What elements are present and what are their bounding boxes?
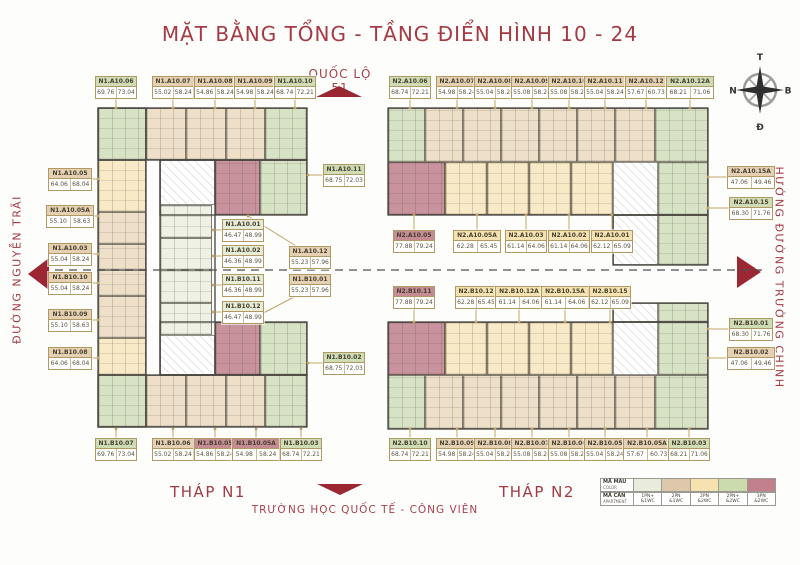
unit-area-net: 62.12: [592, 241, 613, 252]
unit-areas: 46.3648.99: [223, 285, 263, 296]
unit-areas: 47.0649.46: [728, 177, 774, 188]
unit-label-N1.A10.01: N1.A10.0146.4748.99: [222, 219, 264, 242]
unit-area-net: 57.67: [624, 449, 648, 460]
unit-code: N1.A10.02: [223, 246, 263, 256]
unit-label-N2.B10.10: N2.B10.1068.7472.21: [389, 438, 431, 461]
unit-code: N2.B10.05: [585, 439, 625, 449]
unit-areas: 54.8658.24: [195, 87, 235, 98]
unit-area-net: 46.47: [223, 230, 244, 241]
legend-swatch-tan: [662, 478, 690, 492]
unit-area-net: 68.74: [275, 87, 296, 98]
unit-area-net: 55.08: [512, 449, 533, 460]
unit-areas: 68.3071.76: [730, 208, 772, 219]
legend-type-tan: 2PN&1WC: [662, 492, 690, 506]
legend-type-green: 2PN+&2WC: [719, 492, 747, 506]
unit-areas: 55.0458.24: [475, 449, 515, 460]
unit-area-net: 68.74: [390, 449, 411, 460]
unit-areas: 57.6760.73: [626, 87, 666, 98]
unit-areas: 61.1464.06: [506, 241, 546, 252]
unit-areas: 55.0858.24: [512, 449, 552, 460]
compass-icon: T N B Đ: [728, 46, 792, 134]
unit-area-gross: 58.24: [71, 254, 92, 265]
unit-code: N1.B10.02: [324, 353, 364, 363]
unit-area-net: 55.04: [475, 449, 496, 460]
legend-type-pink: 3PN&2WC: [748, 492, 776, 506]
unit-area-gross: 48.99: [244, 285, 264, 296]
unit-label-N2.A10.01: N2.A10.0162.1265.09: [591, 230, 633, 253]
unit-label-N1.A10.07: N1.A10.0755.0258.24: [152, 76, 194, 99]
unit-code: N1.A10.01: [223, 220, 263, 230]
unit-label-N2.B10.05A: N2.B10.05A57.6760.73: [623, 438, 671, 461]
unit-code: N2.A10.01: [592, 231, 632, 241]
unit-areas: 55.2357.96: [290, 285, 330, 296]
legend-type-wc: &2WC: [697, 499, 711, 504]
unit-areas: 62.1265.09: [590, 297, 630, 308]
unit-label-N2.B10.09: N2.B10.0954.9858.24: [436, 438, 478, 461]
unit-area-gross: 73.04: [117, 87, 137, 98]
unit-code: N1.A10.07: [153, 77, 193, 87]
unit-areas: 55.0458.24: [49, 254, 91, 265]
unit-area-gross: 60.73: [647, 87, 667, 98]
unit-code: N2.A10.05A: [454, 231, 500, 241]
unit-label-N2.A10.05A: N2.A10.05A62.2865.45: [453, 230, 501, 253]
legend-color-row: MÃ MÀU COLOR: [600, 478, 776, 492]
unit-label-N2.A10.08: N2.A10.0855.0458.24: [474, 76, 516, 99]
unit-label-N2.B10.12: N2.B10.1262.2865.45: [455, 286, 497, 309]
unit-areas: 68.7472.21: [390, 449, 430, 460]
compass-left-letter: N: [729, 87, 737, 97]
unit-area-net: 68.74: [281, 449, 302, 460]
unit-area-net: 62.28: [454, 241, 478, 252]
unit-label-N2.A10.02: N2.A10.0261.1464.06: [548, 230, 590, 253]
unit-area-gross: 72.21: [302, 449, 322, 460]
unit-code: N2.A10.06: [390, 77, 430, 87]
legend-type-wc: &1WC: [669, 499, 683, 504]
unit-label-N2.A10.15A: N2.A10.15A47.0649.46: [727, 166, 775, 189]
unit-area-net: 55.04: [49, 254, 71, 265]
unit-area-net: 47.06: [728, 177, 752, 188]
unit-code: N1.B10.08: [49, 348, 91, 358]
unit-area-net: 69.76: [96, 449, 117, 460]
unit-code: N2.B10.06: [549, 439, 589, 449]
unit-label-N1.B10.08: N1.B10.0864.0668.04: [48, 347, 92, 370]
unit-label-N2.A10.15: N2.A10.1568.3071.76: [729, 197, 773, 220]
unit-area-net: 68.30: [730, 208, 752, 219]
unit-area-net: 55.08: [549, 87, 570, 98]
unit-label-N2.B10.03: N2.B10.0368.2171.06: [668, 438, 710, 461]
unit-areas: 68.2171.06: [669, 449, 709, 460]
unit-area-net: 55.08: [549, 449, 570, 460]
unit-area-gross: 49.46: [752, 177, 775, 188]
unit-areas: 55.0458.24: [475, 87, 515, 98]
unit-code: N1.A10.05: [49, 169, 91, 179]
unit-code: N2.A10.03: [506, 231, 546, 241]
unit-code: N2.B10.15: [590, 287, 630, 297]
unit-area-gross: 72.21: [411, 449, 431, 460]
unit-area-gross: 68.04: [71, 179, 92, 190]
unit-area-gross: 68.04: [71, 358, 92, 369]
unit-code: N1.B10.03: [281, 439, 321, 449]
unit-areas: 77.8879.24: [394, 241, 434, 252]
unit-code: N1.A10.03: [49, 244, 91, 254]
unit-area-net: 55.02: [153, 449, 174, 460]
unit-label-N1.A10.05: N1.A10.0564.0668.04: [48, 168, 92, 191]
unit-area-gross: 64.06: [527, 241, 547, 252]
unit-areas: 68.3071.76: [730, 329, 772, 340]
unit-area-net: 55.04: [475, 87, 496, 98]
unit-code: N2.B10.12A: [496, 287, 542, 297]
unit-label-N1.B10.11: N1.B10.1146.3648.99: [222, 274, 264, 297]
unit-areas: 55.0858.24: [549, 449, 589, 460]
legend-type-wc: &2WC: [754, 499, 768, 504]
unit-label-N1.A10.12: N1.A10.1255.2357.96: [289, 246, 331, 269]
unit-area-net: 69.76: [96, 87, 117, 98]
unit-area-net: 68.30: [730, 329, 752, 340]
unit-code: N2.A10.02: [549, 231, 589, 241]
unit-area-gross: 58.63: [71, 320, 92, 331]
unit-areas: 46.4748.99: [223, 230, 263, 241]
unit-code: N2.A10.12A: [667, 77, 713, 87]
unit-area-gross: 79.24: [415, 297, 435, 308]
legend-swatch-pink: [748, 478, 776, 492]
unit-area-net: 54.98: [437, 449, 458, 460]
unit-area-net: 55.23: [290, 285, 311, 296]
unit-areas: 69.7673.04: [96, 87, 136, 98]
unit-area-gross: 64.06: [570, 241, 590, 252]
unit-area-net: 55.02: [153, 87, 174, 98]
unit-area-gross: 65.45: [478, 241, 501, 252]
unit-label-N2.B10.15: N2.B10.1562.1265.09: [589, 286, 631, 309]
legend-type-wc: &2WC: [726, 499, 740, 504]
unit-label-N1.A10.02: N1.A10.0246.3648.99: [222, 245, 264, 268]
unit-label-N1.B10.06: N1.B10.0655.0258.24: [152, 438, 194, 461]
unit-area-net: 55.10: [49, 320, 71, 331]
unit-label-N1.B10.12: N1.B10.1246.4748.99: [222, 301, 264, 324]
unit-area-net: 68.21: [667, 87, 691, 98]
unit-label-N1.B10.01: N1.B10.0155.2357.96: [289, 274, 331, 297]
unit-label-N1.A10.06: N1.A10.0669.7673.04: [95, 76, 137, 99]
unit-area-gross: 58.24: [174, 87, 194, 98]
unit-area-net: 64.06: [49, 358, 71, 369]
unit-areas: 54.9858.24: [233, 449, 279, 460]
unit-area-net: 46.36: [223, 285, 244, 296]
unit-area-gross: 72.21: [296, 87, 316, 98]
unit-area-net: 46.36: [223, 256, 244, 267]
unit-area-net: 77.88: [394, 297, 415, 308]
unit-label-N1.A10.10: N1.A10.1068.7472.21: [274, 76, 316, 99]
unit-area-gross: 65.09: [611, 297, 631, 308]
unit-areas: 64.0668.04: [49, 358, 91, 369]
unit-label-N2.A10.07: N2.A10.0754.9858.24: [436, 76, 478, 99]
unit-area-net: 54.98: [437, 87, 458, 98]
unit-area-net: 61.14: [496, 297, 520, 308]
unit-area-net: 55.10: [47, 216, 71, 227]
unit-area-gross: 58.63: [71, 216, 94, 227]
unit-area-net: 62.28: [456, 297, 477, 308]
unit-code: N1.B10.12: [223, 302, 263, 312]
unit-areas: 68.7472.21: [281, 449, 321, 460]
unit-areas: 46.3648.99: [223, 256, 263, 267]
unit-code: N1.B10.05: [195, 439, 235, 449]
unit-areas: 55.2357.96: [290, 257, 330, 268]
unit-code: N2.A10.08: [475, 77, 515, 87]
legend-color-sublabel: COLOR: [603, 485, 633, 490]
unit-code: N2.B10.02: [728, 348, 774, 358]
unit-area-net: 54.98: [235, 87, 256, 98]
compass-bottom-letter: Đ: [756, 123, 764, 133]
unit-area-net: 64.06: [49, 179, 71, 190]
unit-area-gross: 48.99: [244, 256, 264, 267]
unit-area-gross: 58.24: [216, 87, 236, 98]
unit-areas: 55.0458.24: [585, 449, 625, 460]
legend-color-header: MÃ MÀU COLOR: [600, 478, 634, 492]
legend-apartment-row: MÃ CĂN APARTMENT 1PN+&1WC2PN&1WC2PN&2WC2…: [600, 492, 776, 506]
unit-code: N1.A10.10: [275, 77, 315, 87]
unit-code: N1.B10.05A: [233, 439, 279, 449]
unit-area-net: 55.04: [49, 283, 71, 294]
unit-code: N2.B10.12: [456, 287, 496, 297]
unit-code: N2.A10.11: [585, 77, 625, 87]
unit-areas: 68.7572.03: [324, 363, 364, 374]
unit-code: N2.B10.11: [394, 287, 434, 297]
unit-areas: 55.0858.24: [512, 87, 552, 98]
unit-label-N2.B10.08: N2.B10.0855.0458.24: [474, 438, 516, 461]
unit-area-gross: 71.76: [752, 329, 773, 340]
unit-label-N1.A10.09: N1.A10.0954.9858.24: [234, 76, 276, 99]
unit-code: N2.B10.09: [437, 439, 477, 449]
compass-top-letter: T: [757, 53, 764, 63]
unit-area-net: 54.86: [195, 449, 216, 460]
unit-area-gross: 58.24: [71, 283, 92, 294]
unit-code: N1.A10.08: [195, 77, 235, 87]
unit-areas: 68.7572.03: [324, 175, 364, 186]
unit-area-gross: 71.76: [752, 208, 773, 219]
unit-areas: 69.7673.04: [96, 449, 136, 460]
unit-label-N2.B10.07: N2.B10.0755.0858.24: [511, 438, 553, 461]
unit-areas: 62.2865.45: [454, 241, 500, 252]
unit-areas: 64.0668.04: [49, 179, 91, 190]
unit-code: N2.A10.15A: [728, 167, 774, 177]
unit-code: N2.A10.15: [730, 198, 772, 208]
unit-areas: 54.9858.24: [437, 449, 477, 460]
unit-area-gross: 64.06: [520, 297, 543, 308]
unit-area-gross: 71.06: [691, 87, 714, 98]
legend-type-wc: &1WC: [641, 499, 655, 504]
unit-code: N2.B10.15A: [542, 287, 588, 297]
unit-area-net: 61.14: [506, 241, 527, 252]
legend-swatch-green: [719, 478, 747, 492]
compass-right-letter: B: [785, 87, 792, 97]
unit-area-gross: 73.04: [117, 449, 137, 460]
unit-areas: 55.0458.24: [49, 283, 91, 294]
unit-area-gross: 72.21: [411, 87, 431, 98]
unit-label-N1.B10.09: N1.B10.0955.1058.63: [48, 309, 92, 332]
unit-area-net: 68.75: [324, 363, 345, 374]
unit-label-N1.B10.03: N1.B10.0368.7472.21: [280, 438, 322, 461]
unit-code: N1.B10.06: [153, 439, 193, 449]
unit-label-N1.B10.05: N1.B10.0554.8658.24: [194, 438, 236, 461]
unit-code: N1.B10.07: [96, 439, 136, 449]
unit-label-N2.B10.02: N2.B10.0247.0649.46: [727, 347, 775, 370]
unit-code: N2.A10.09: [512, 77, 552, 87]
unit-label-N1.A10.03: N1.A10.0355.0458.24: [48, 243, 92, 266]
unit-areas: 47.0649.46: [728, 358, 774, 369]
unit-areas: 61.1464.06: [496, 297, 542, 308]
unit-code: N2.A10.07: [437, 77, 477, 87]
unit-area-gross: 71.06: [690, 449, 710, 460]
legend-type-celadon: 1PN+&1WC: [634, 492, 662, 506]
unit-label-N1.B10.10: N1.B10.1055.0458.24: [48, 272, 92, 295]
unit-label-N1.A10.05A: N1.A10.05A55.1058.63: [46, 205, 94, 228]
unit-areas: 54.9858.24: [235, 87, 275, 98]
unit-label-N2.A10.05: N2.A10.0577.8879.24: [393, 230, 435, 253]
unit-areas: 54.9858.24: [437, 87, 477, 98]
unit-areas: 61.1464.06: [542, 297, 588, 308]
unit-area-net: 46.47: [223, 312, 244, 323]
unit-label-N1.A10.11: N1.A10.1168.7572.03: [323, 164, 365, 187]
unit-area-gross: 58.24: [256, 87, 276, 98]
legend-swatch-celadon: [634, 478, 662, 492]
unit-areas: 55.0858.24: [549, 87, 589, 98]
unit-code: N2.B10.01: [730, 319, 772, 329]
unit-label-N2.A10.12A: N2.A10.12A68.2171.06: [666, 76, 714, 99]
unit-areas: 55.0458.24: [585, 87, 625, 98]
unit-code: N2.B10.05A: [624, 439, 670, 449]
legend: MÃ MÀU COLOR MÃ CĂN APARTMENT 1PN+&1WC2P…: [600, 478, 776, 506]
unit-areas: 77.8879.24: [394, 297, 434, 308]
unit-area-gross: 48.99: [244, 312, 264, 323]
unit-area-gross: 58.24: [174, 449, 194, 460]
unit-label-N2.B10.01: N2.B10.0168.3071.76: [729, 318, 773, 341]
unit-label-N2.B10.15A: N2.B10.15A61.1464.06: [541, 286, 589, 309]
unit-area-net: 55.04: [585, 87, 606, 98]
unit-code: N2.A10.10: [549, 77, 589, 87]
unit-area-net: 55.04: [585, 449, 606, 460]
unit-code: N2.B10.10: [390, 439, 430, 449]
unit-area-gross: 65.45: [477, 297, 497, 308]
unit-area-gross: 57.96: [311, 285, 331, 296]
unit-code: N1.A10.06: [96, 77, 136, 87]
unit-area-net: 57.67: [626, 87, 647, 98]
unit-area-net: 61.14: [549, 241, 570, 252]
unit-area-net: 68.75: [324, 175, 345, 186]
unit-areas: 68.2171.06: [667, 87, 713, 98]
unit-code: N1.B10.10: [49, 273, 91, 283]
unit-code: N1.B10.09: [49, 310, 91, 320]
unit-code: N1.A10.05A: [47, 206, 93, 216]
unit-areas: 68.7472.21: [275, 87, 315, 98]
unit-label-N2.A10.12: N2.A10.1257.6760.73: [625, 76, 667, 99]
unit-area-gross: 49.46: [752, 358, 775, 369]
unit-code: N1.B10.01: [290, 275, 330, 285]
unit-area-gross: 60.73: [648, 449, 671, 460]
unit-area-net: 54.86: [195, 87, 216, 98]
unit-label-N1.B10.07: N1.B10.0769.7673.04: [95, 438, 137, 461]
unit-label-N2.B10.12A: N2.B10.12A61.1464.06: [495, 286, 543, 309]
unit-area-gross: 72.03: [345, 363, 365, 374]
unit-areas: 46.4748.99: [223, 312, 263, 323]
unit-code: N1.A10.12: [290, 247, 330, 257]
unit-area-net: 68.21: [669, 449, 690, 460]
legend-apartment-header: MÃ CĂN APARTMENT: [600, 492, 634, 506]
unit-code: N2.A10.12: [626, 77, 666, 87]
unit-label-N2.B10.05: N2.B10.0555.0458.24: [584, 438, 626, 461]
unit-area-gross: 65.09: [613, 241, 633, 252]
unit-label-N1.B10.02: N1.B10.0268.7572.03: [323, 352, 365, 375]
unit-area-net: 55.23: [290, 257, 311, 268]
unit-area-gross: 79.24: [415, 241, 435, 252]
unit-label-N1.B10.05A: N1.B10.05A54.9858.24: [232, 438, 280, 461]
unit-code: N1.A10.11: [324, 165, 364, 175]
unit-area-net: 61.14: [542, 297, 566, 308]
unit-areas: 55.0258.24: [153, 449, 193, 460]
unit-area-net: 54.98: [233, 449, 257, 460]
unit-area-gross: 48.99: [244, 230, 264, 241]
unit-code: N1.B10.11: [223, 275, 263, 285]
unit-areas: 54.8658.24: [195, 449, 235, 460]
unit-label-N2.B10.11: N2.B10.1177.8879.24: [393, 286, 435, 309]
unit-label-N1.A10.08: N1.A10.0854.8658.24: [194, 76, 236, 99]
unit-code: N2.B10.03: [669, 439, 709, 449]
unit-areas: 62.2865.45: [456, 297, 496, 308]
unit-area-net: 47.06: [728, 358, 752, 369]
unit-areas: 68.7472.21: [390, 87, 430, 98]
unit-label-N2.A10.03: N2.A10.0361.1464.06: [505, 230, 547, 253]
unit-code: N2.B10.08: [475, 439, 515, 449]
unit-area-gross: 57.96: [311, 257, 331, 268]
unit-area-gross: 58.24: [606, 87, 626, 98]
unit-areas: 55.1058.63: [49, 320, 91, 331]
unit-label-N2.A10.06: N2.A10.0668.7472.21: [389, 76, 431, 99]
legend-swatch-yellow: [691, 478, 719, 492]
legend-type-yellow: 2PN&2WC: [691, 492, 719, 506]
unit-area-net: 55.08: [512, 87, 533, 98]
unit-area-gross: 58.24: [257, 449, 280, 460]
unit-areas: 55.0258.24: [153, 87, 193, 98]
unit-label-N2.A10.09: N2.A10.0955.0858.24: [511, 76, 553, 99]
unit-code: N1.A10.09: [235, 77, 275, 87]
unit-areas: 55.1058.63: [47, 216, 93, 227]
unit-area-net: 68.74: [390, 87, 411, 98]
unit-areas: 62.1265.09: [592, 241, 632, 252]
unit-area-net: 77.88: [394, 241, 415, 252]
unit-code: N2.A10.05: [394, 231, 434, 241]
unit-area-net: 62.12: [590, 297, 611, 308]
unit-areas: 61.1464.06: [549, 241, 589, 252]
legend-apartment-sublabel: APARTMENT: [603, 499, 633, 504]
unit-area-gross: 64.06: [566, 297, 589, 308]
floorplan-stage: MẶT BẰNG TỔNG - TẦNG ĐIỂN HÌNH 10 - 24 Q…: [0, 0, 800, 565]
unit-area-gross: 72.03: [345, 175, 365, 186]
unit-code: N2.B10.07: [512, 439, 552, 449]
unit-areas: 57.6760.73: [624, 449, 670, 460]
unit-label-N2.A10.11: N2.A10.1155.0458.24: [584, 76, 626, 99]
